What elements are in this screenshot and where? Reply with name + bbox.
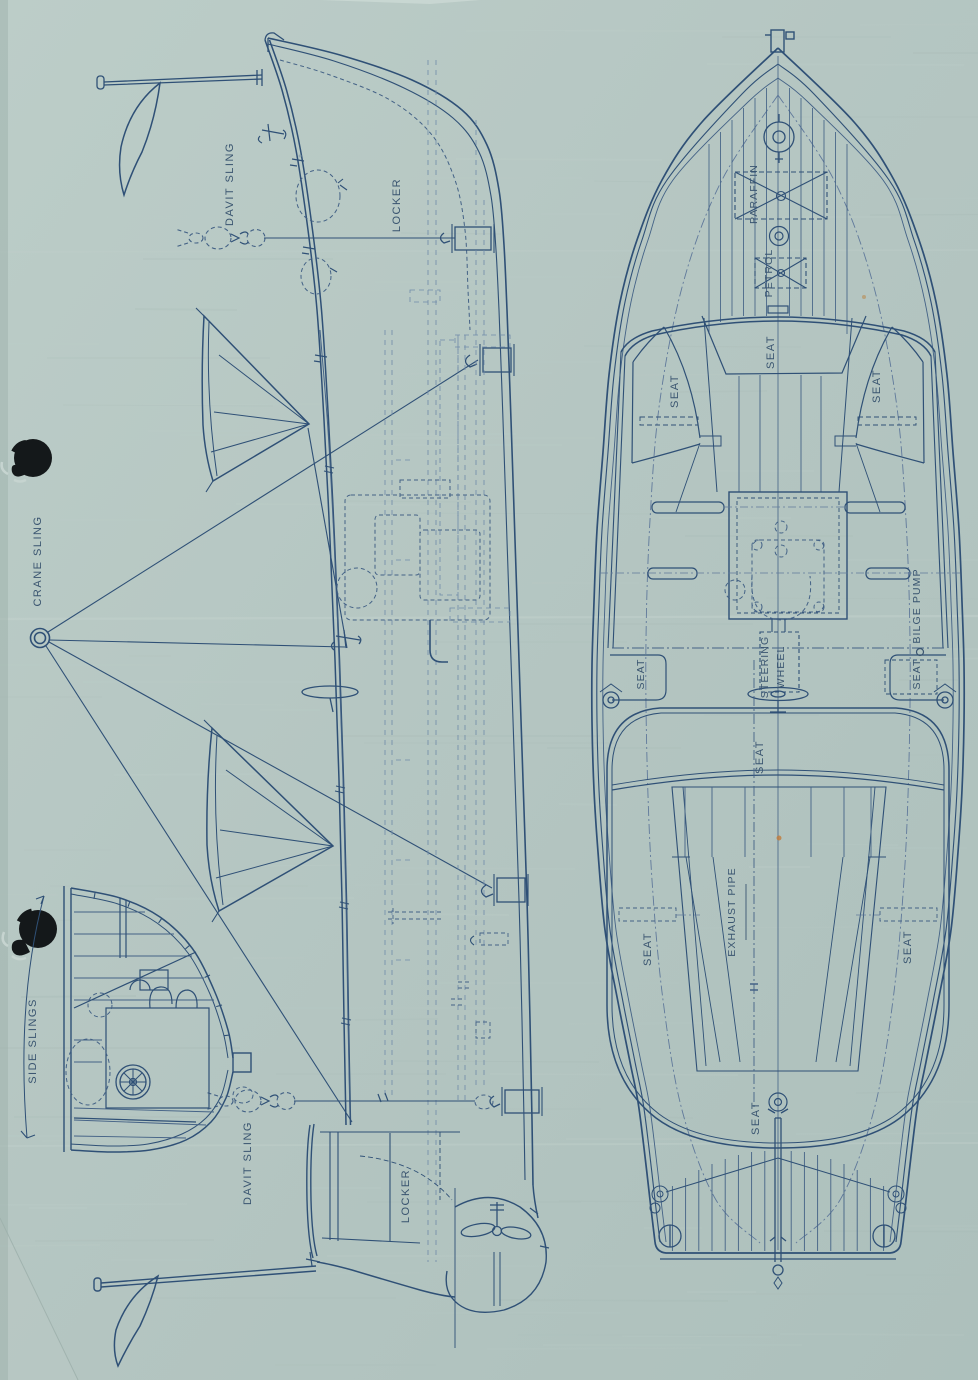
svg-text:SEAT: SEAT: [911, 658, 923, 689]
svg-text:DAVIT SLING: DAVIT SLING: [224, 142, 236, 226]
svg-text:SEAT: SEAT: [871, 369, 883, 403]
svg-text:WHEEL: WHEEL: [775, 646, 787, 689]
svg-text:DAVIT SLING: DAVIT SLING: [242, 1121, 254, 1205]
svg-text:PETROL: PETROL: [763, 249, 775, 298]
svg-text:STEERING: STEERING: [759, 636, 771, 698]
svg-text:LOCKER: LOCKER: [400, 1169, 412, 1223]
svg-text:SEAT: SEAT: [669, 374, 681, 408]
svg-text:SEAT: SEAT: [635, 658, 647, 689]
svg-text:LOCKER: LOCKER: [391, 178, 403, 232]
svg-text:SIDE SLINGS: SIDE SLINGS: [27, 998, 39, 1084]
svg-text:SEAT: SEAT: [765, 335, 777, 369]
svg-text:SEAT: SEAT: [750, 1101, 762, 1135]
svg-text:PARAFFIN: PARAFFIN: [748, 164, 760, 224]
svg-text:CRANE SLING: CRANE SLING: [32, 515, 44, 606]
svg-text:BILGE PUMP: BILGE PUMP: [911, 568, 923, 643]
svg-text:SEAT: SEAT: [902, 930, 914, 964]
svg-text:SEAT: SEAT: [754, 740, 766, 774]
svg-text:EXHAUST PIPE: EXHAUST PIPE: [726, 867, 738, 956]
svg-text:SEAT: SEAT: [642, 932, 654, 966]
